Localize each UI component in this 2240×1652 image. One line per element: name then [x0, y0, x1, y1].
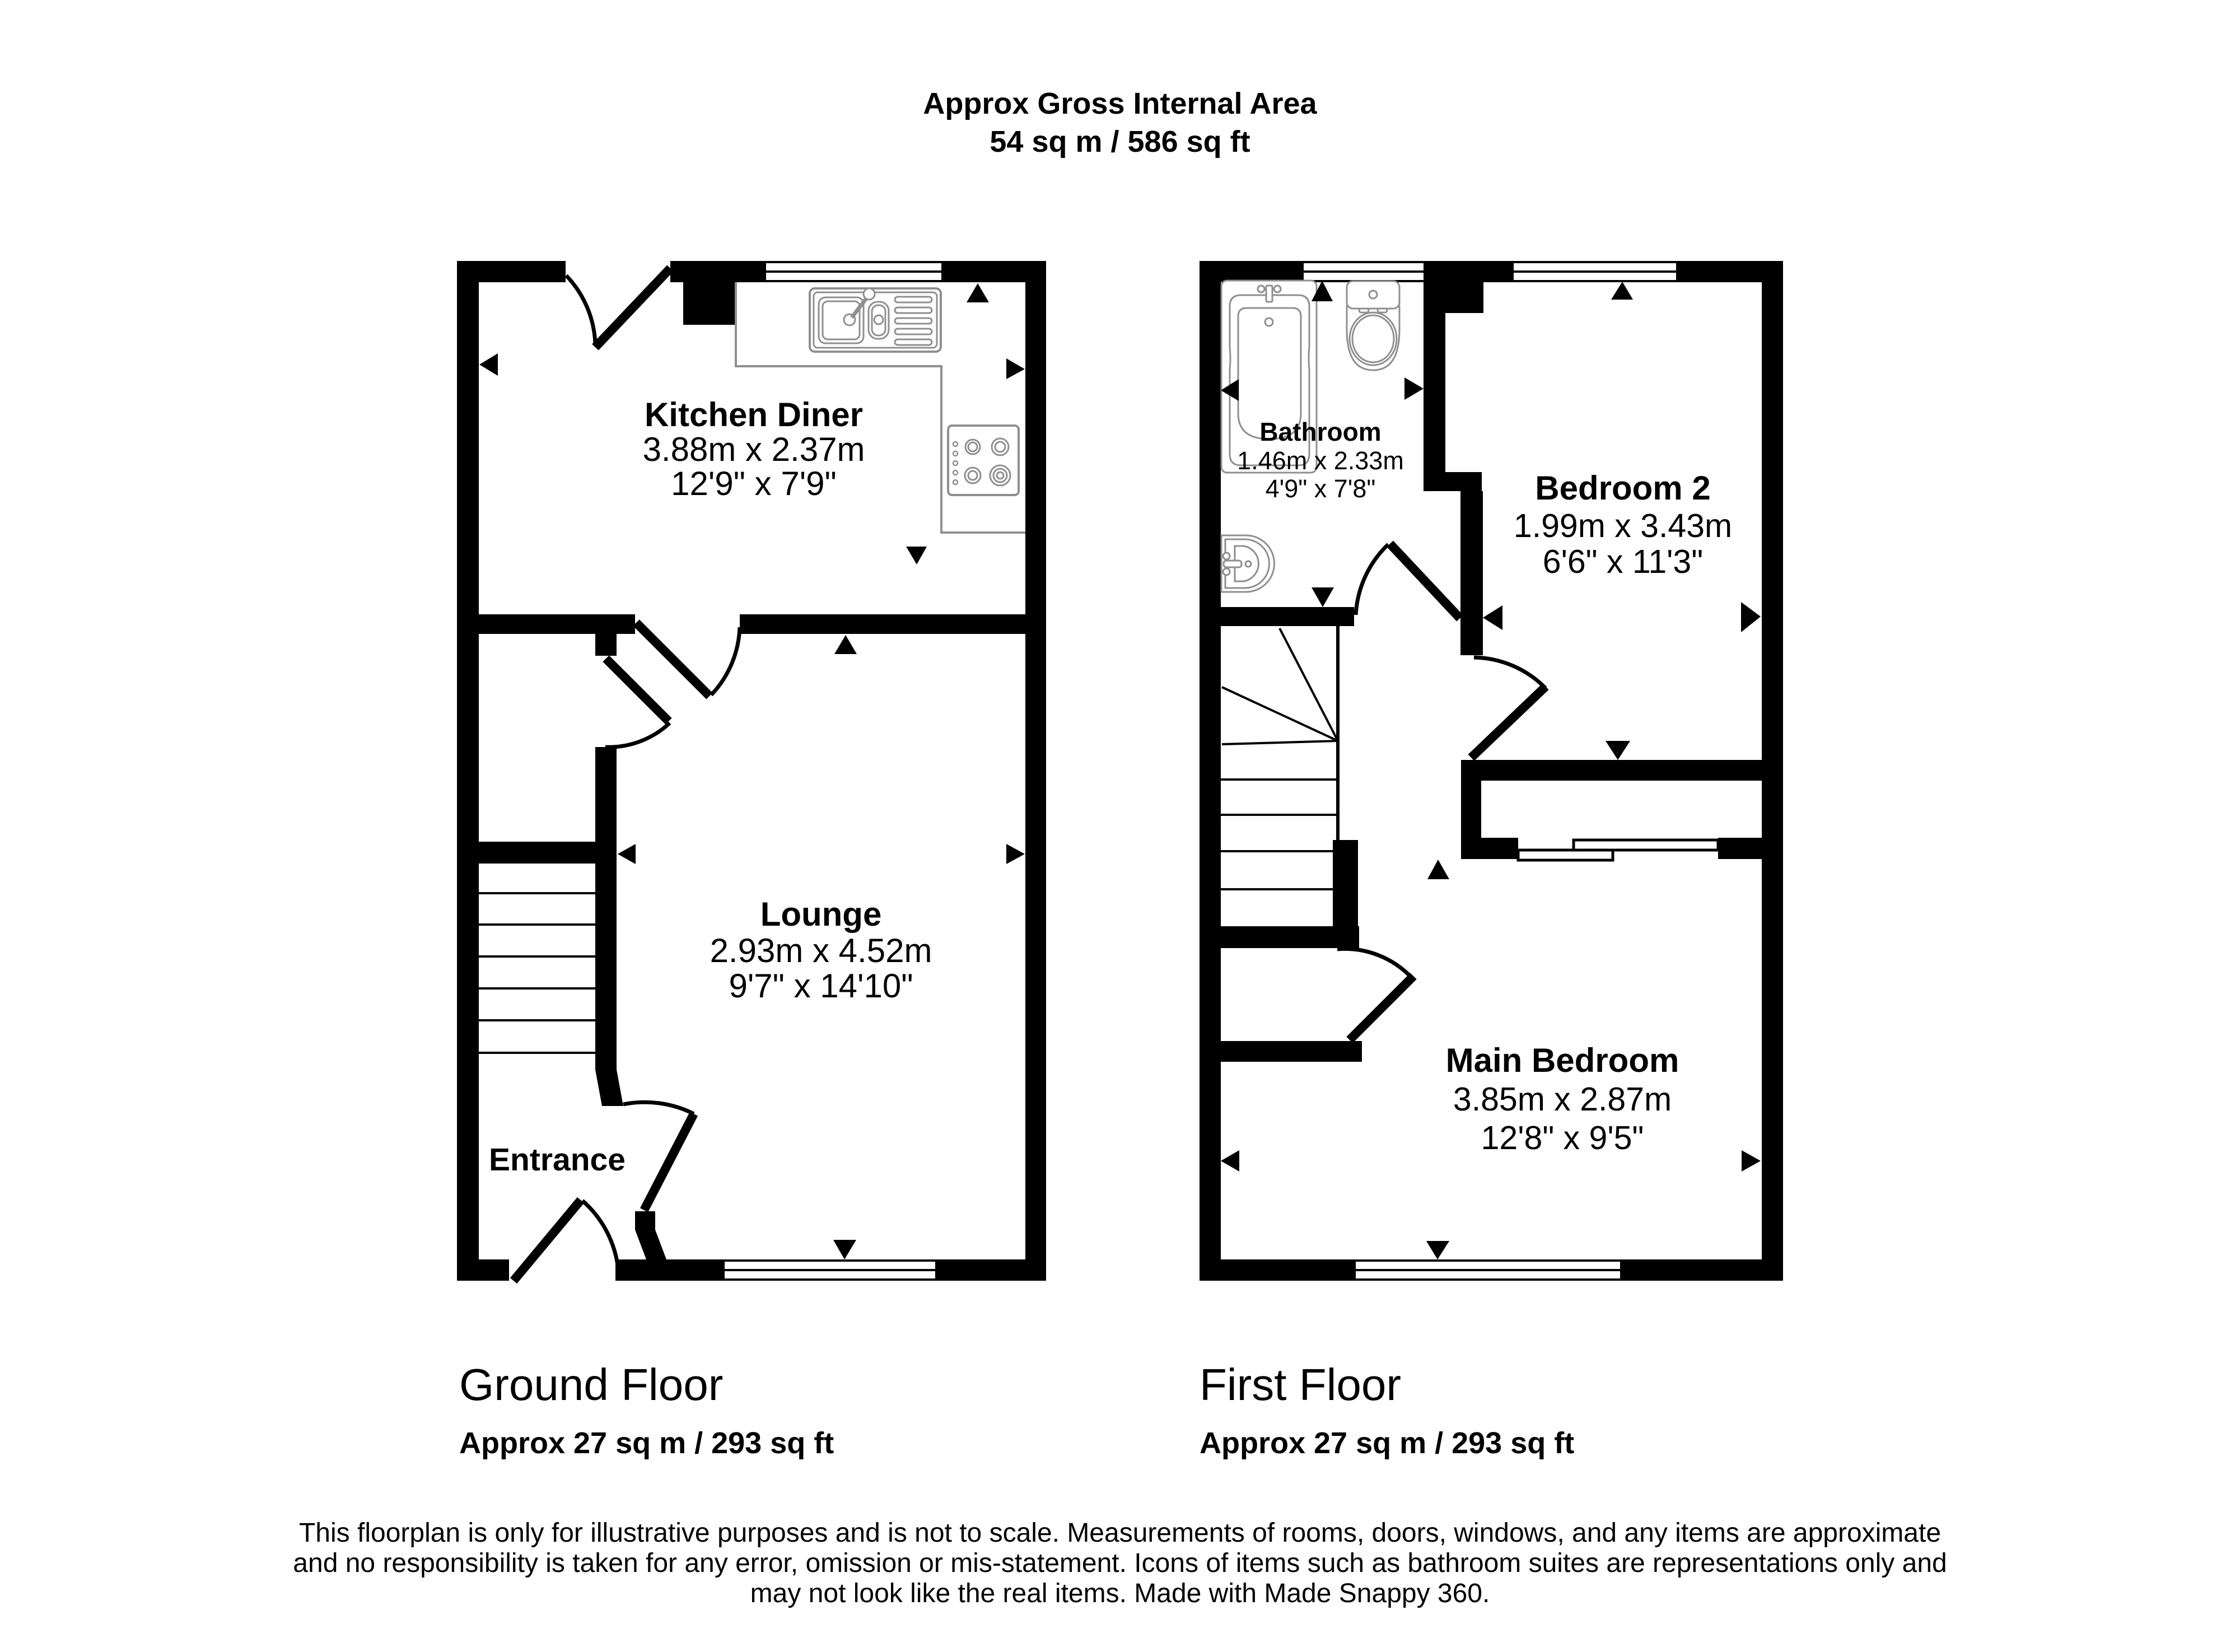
svg-text:3.88m x 2.37m: 3.88m x 2.37m — [643, 431, 865, 468]
svg-text:4'9" x 7'8": 4'9" x 7'8" — [1266, 474, 1376, 503]
svg-text:12'8" x 9'5": 12'8" x 9'5" — [1481, 1119, 1644, 1156]
svg-text:Kitchen Diner: Kitchen Diner — [645, 396, 863, 433]
svg-text:12'9" x 7'9": 12'9" x 7'9" — [671, 465, 837, 502]
svg-text:9'7" x 14'10": 9'7" x 14'10" — [729, 967, 913, 1005]
svg-text:Ground Floor: Ground Floor — [459, 1360, 723, 1410]
svg-text:Bathroom: Bathroom — [1259, 417, 1381, 446]
svg-text:Approx 27 sq m / 293 sq ft: Approx 27 sq m / 293 sq ft — [1200, 1426, 1574, 1460]
svg-text:First Floor: First Floor — [1200, 1360, 1401, 1410]
svg-text:and no responsibility is taken: and no responsibility is taken for any e… — [293, 1548, 1947, 1578]
svg-text:3.85m x 2.87m: 3.85m x 2.87m — [1453, 1081, 1672, 1118]
svg-text:Lounge: Lounge — [760, 895, 882, 933]
svg-text:This floorplan is only for ill: This floorplan is only for illustrative … — [299, 1518, 1941, 1548]
svg-text:6'6" x 11'3": 6'6" x 11'3" — [1543, 543, 1703, 580]
svg-text:Main Bedroom: Main Bedroom — [1446, 1042, 1679, 1079]
svg-text:Entrance: Entrance — [489, 1142, 626, 1178]
svg-text:1.99m x 3.43m: 1.99m x 3.43m — [1514, 507, 1732, 544]
svg-text:2.93m x 4.52m: 2.93m x 4.52m — [710, 932, 932, 969]
svg-text:Approx 27 sq m / 293 sq ft: Approx 27 sq m / 293 sq ft — [459, 1426, 834, 1460]
svg-text:Bedroom 2: Bedroom 2 — [1535, 469, 1710, 507]
svg-text:1.46m x 2.33m: 1.46m x 2.33m — [1237, 446, 1404, 475]
svg-text:Approx Gross Internal Area: Approx Gross Internal Area — [923, 87, 1317, 120]
svg-text:54 sq m / 586 sq ft: 54 sq m / 586 sq ft — [990, 125, 1250, 158]
svg-text:may not look like the real ite: may not look like the real items. Made w… — [750, 1579, 1490, 1608]
